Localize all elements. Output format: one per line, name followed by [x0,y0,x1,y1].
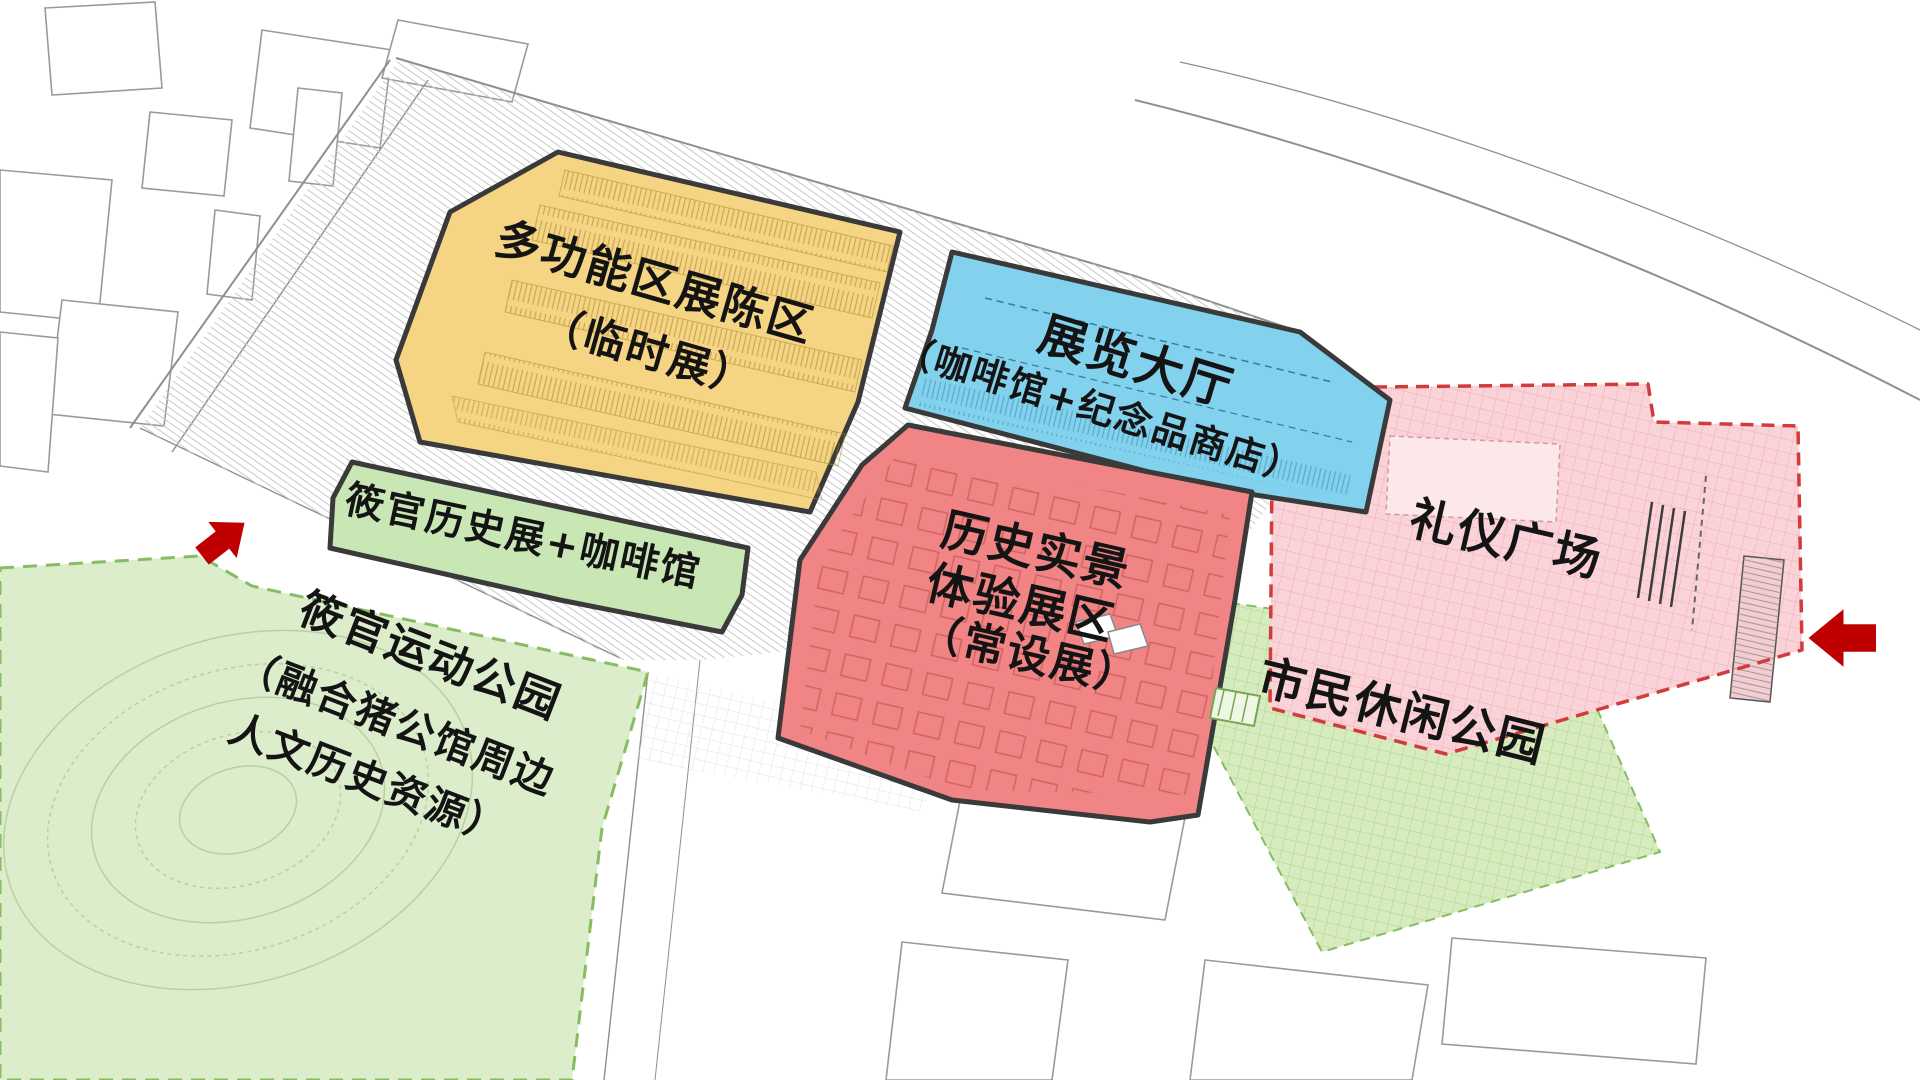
site-plan: 多功能区展陈区 （临时展） 展览大厅 （咖啡馆+纪念品商店） 历史实景 体验展区… [0,0,1920,1080]
entrance-arrow-right-icon [1809,609,1877,667]
